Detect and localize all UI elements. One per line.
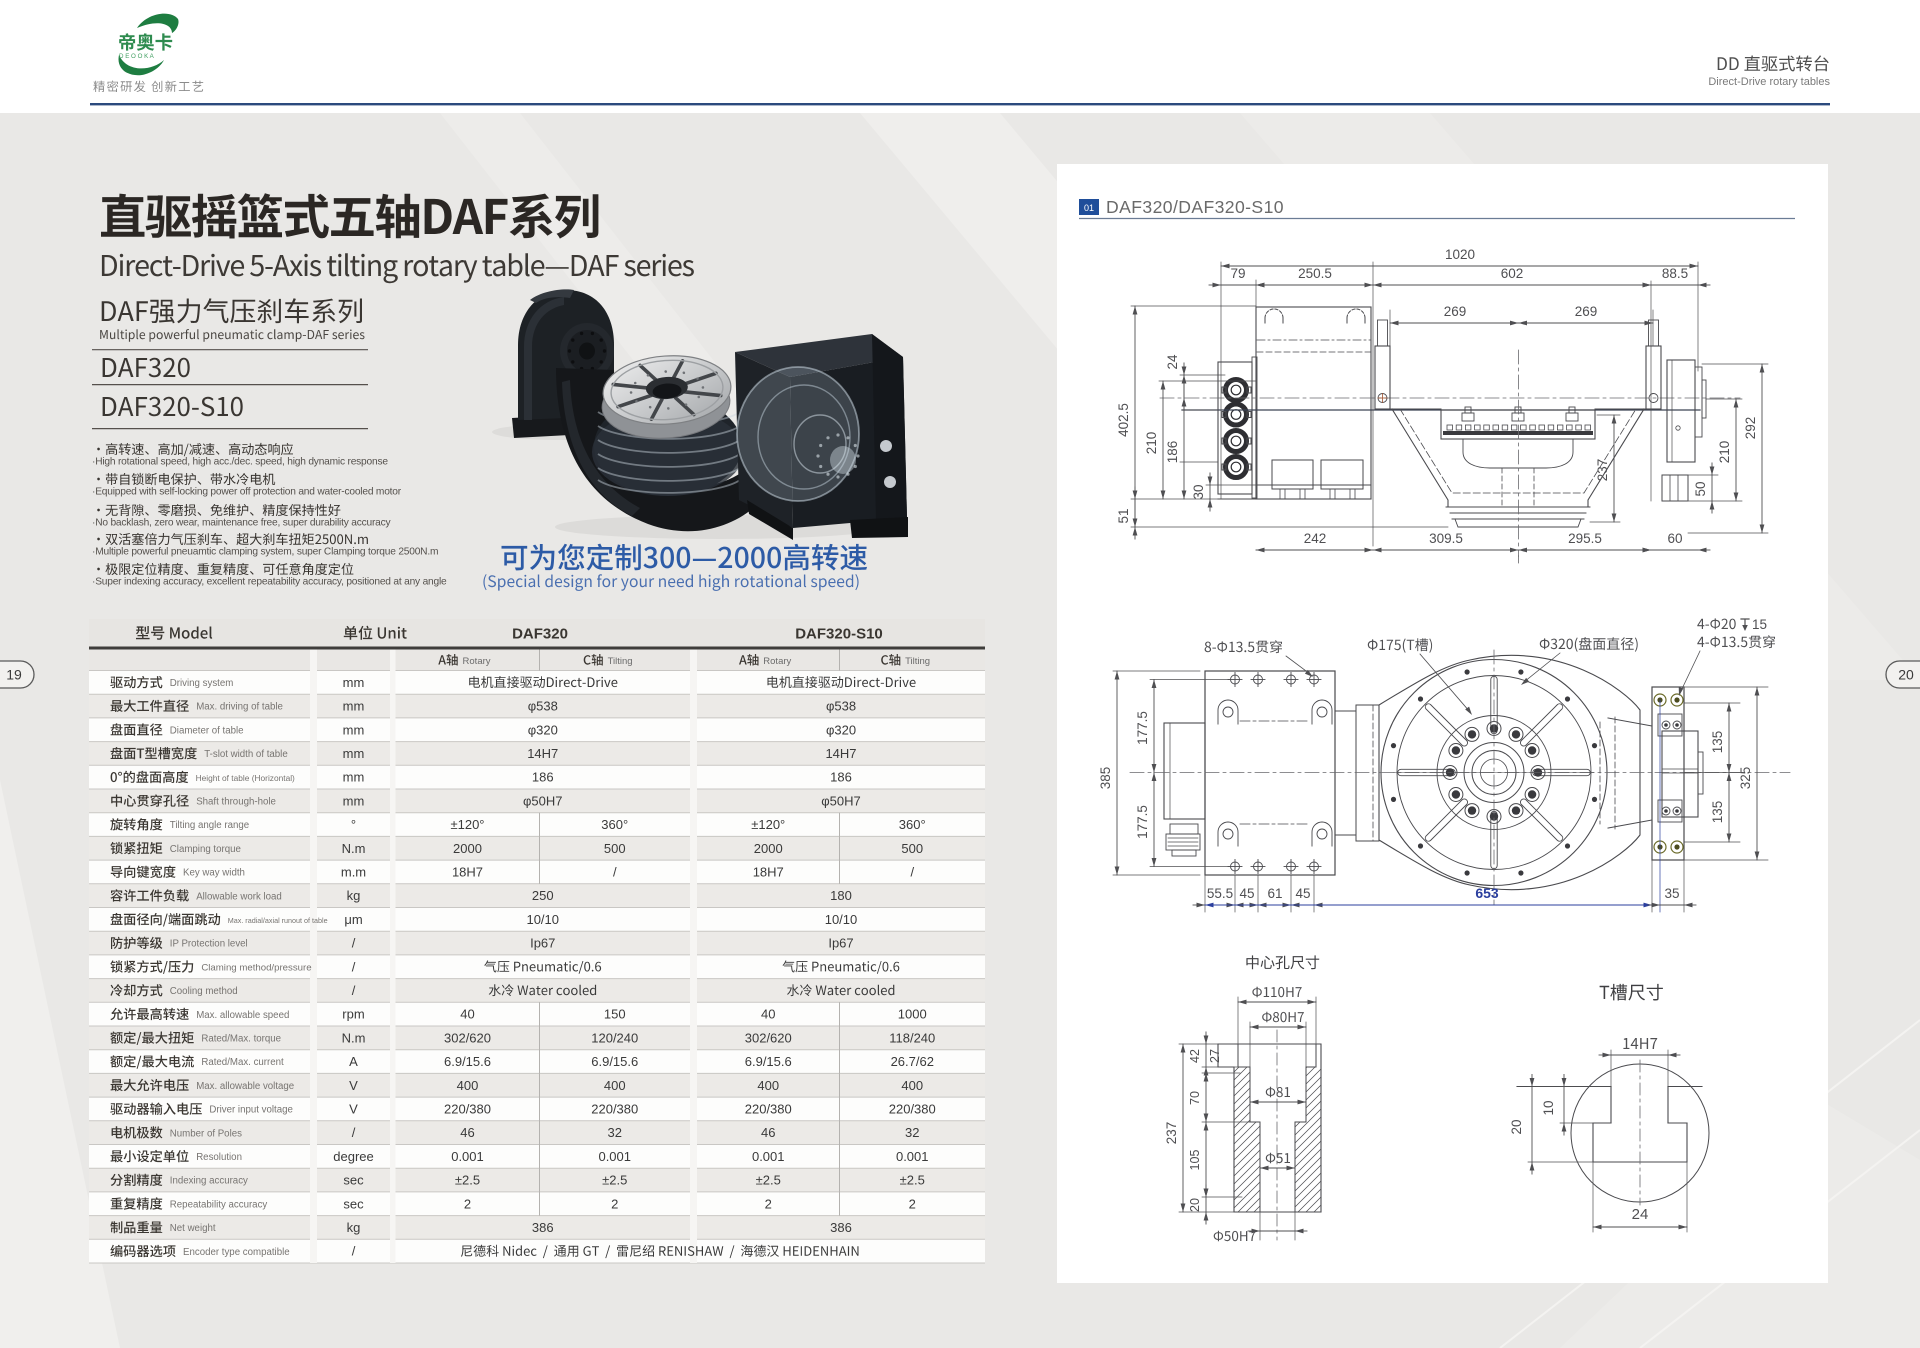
svg-text:55.5: 55.5 — [1207, 886, 1233, 901]
svg-text:250.5: 250.5 — [1298, 266, 1332, 281]
svg-text:2: 2 — [611, 1196, 618, 1211]
svg-text:0.001: 0.001 — [752, 1149, 785, 1164]
svg-text:Rotary: Rotary — [463, 656, 491, 667]
svg-text:Allowable work load: Allowable work load — [196, 891, 282, 902]
svg-text:φ50H7: φ50H7 — [523, 793, 563, 808]
svg-text:±2.5: ±2.5 — [455, 1173, 480, 1188]
svg-text:±120°: ±120° — [751, 817, 785, 832]
svg-text:m.m: m.m — [341, 864, 366, 879]
svg-text:·High rotational speed, high a: ·High rotational speed, high acc./dec. s… — [92, 457, 388, 468]
svg-text:Height of table (Horizontal): Height of table (Horizontal) — [196, 773, 295, 783]
svg-text:DAF320: DAF320 — [512, 626, 568, 643]
svg-text:Rated/Max. current: Rated/Max. current — [201, 1057, 284, 1068]
svg-text:degree: degree — [333, 1149, 373, 1164]
svg-text:Max. allowable voltage: Max. allowable voltage — [196, 1081, 294, 1092]
svg-text:79: 79 — [1230, 266, 1245, 281]
svg-text:30: 30 — [1191, 484, 1206, 499]
svg-text:°: ° — [351, 817, 356, 832]
svg-text:46: 46 — [761, 1125, 775, 1140]
svg-text:10/10: 10/10 — [825, 912, 858, 927]
svg-text:·Super indexing accuracy, exce: ·Super indexing accuracy, excellent repe… — [92, 577, 447, 588]
svg-text:24: 24 — [1632, 1206, 1649, 1223]
svg-text:Indexing accuracy: Indexing accuracy — [170, 1176, 248, 1187]
svg-text:IP Protection level: IP Protection level — [170, 939, 248, 950]
svg-text:292: 292 — [1743, 417, 1758, 440]
svg-text:6.9/15.6: 6.9/15.6 — [444, 1054, 491, 1069]
svg-text:51: 51 — [1116, 508, 1131, 523]
svg-text:6.9/15.6: 6.9/15.6 — [745, 1054, 792, 1069]
svg-text:mm: mm — [343, 793, 365, 808]
svg-text:220/380: 220/380 — [745, 1101, 792, 1116]
svg-text:602: 602 — [1501, 266, 1524, 281]
svg-text:Tilting: Tilting — [608, 656, 633, 667]
svg-text:70: 70 — [1188, 1091, 1202, 1105]
svg-text:Rated/Max. torque: Rated/Max. torque — [201, 1033, 281, 1044]
svg-text:rpm: rpm — [342, 1007, 364, 1022]
svg-text:237: 237 — [1164, 1122, 1179, 1145]
svg-text:DAF320-S10: DAF320-S10 — [795, 626, 883, 643]
svg-text:10/10: 10/10 — [526, 912, 559, 927]
svg-text:Shaft through-hole: Shaft through-hole — [196, 796, 276, 807]
svg-text:45: 45 — [1295, 886, 1310, 901]
svg-text:6.9/15.6: 6.9/15.6 — [591, 1054, 638, 1069]
svg-text:19: 19 — [6, 667, 22, 683]
svg-text:386: 386 — [830, 1220, 852, 1235]
svg-text:mm: mm — [343, 770, 365, 785]
svg-text:105: 105 — [1188, 1150, 1202, 1171]
svg-text:20: 20 — [1898, 667, 1914, 683]
svg-text:269: 269 — [1444, 304, 1467, 319]
svg-text:/: / — [352, 983, 356, 998]
svg-text:±2.5: ±2.5 — [602, 1173, 627, 1188]
svg-text:135: 135 — [1710, 731, 1725, 754]
svg-text:177.5: 177.5 — [1135, 711, 1150, 745]
svg-text:0.001: 0.001 — [598, 1149, 631, 1164]
svg-text:242: 242 — [1304, 531, 1327, 546]
svg-text:325: 325 — [1738, 767, 1753, 790]
svg-text:14H7: 14H7 — [825, 746, 856, 761]
svg-text:/: / — [613, 864, 617, 879]
svg-text:400: 400 — [604, 1078, 626, 1093]
svg-text:D E O O K A: D E O O K A — [119, 53, 155, 60]
svg-text:DAF320/DAF320-S10: DAF320/DAF320-S10 — [1106, 197, 1284, 217]
svg-text:186: 186 — [532, 770, 554, 785]
svg-text:sec: sec — [343, 1196, 364, 1211]
svg-text:400: 400 — [757, 1078, 779, 1093]
svg-text:309.5: 309.5 — [1429, 531, 1463, 546]
svg-text:2: 2 — [464, 1196, 471, 1211]
svg-text:φ538: φ538 — [826, 699, 856, 714]
svg-text:mm: mm — [343, 675, 365, 690]
svg-text:50: 50 — [1693, 481, 1708, 496]
svg-text:385: 385 — [1098, 767, 1113, 790]
svg-text:φ50H7: φ50H7 — [821, 793, 861, 808]
svg-text:kg: kg — [347, 888, 361, 903]
svg-text:Ip67: Ip67 — [530, 936, 555, 951]
svg-text:18H7: 18H7 — [753, 864, 784, 879]
svg-text:2: 2 — [909, 1196, 916, 1211]
svg-text:μm: μm — [344, 912, 362, 927]
svg-text:Repeatability accuracy: Repeatability accuracy — [170, 1199, 268, 1210]
svg-text:Clamping torque: Clamping torque — [170, 844, 241, 855]
svg-text:/: / — [352, 1244, 356, 1259]
svg-text:500: 500 — [604, 841, 626, 856]
svg-text:Max. radial/axial runout of ta: Max. radial/axial runout of table — [228, 916, 328, 925]
svg-text:360°: 360° — [899, 817, 926, 832]
svg-text:177.5: 177.5 — [1135, 805, 1150, 839]
svg-text:88.5: 88.5 — [1662, 266, 1688, 281]
svg-text:N.m: N.m — [342, 841, 366, 856]
svg-text:2: 2 — [765, 1196, 772, 1211]
svg-text:2000: 2000 — [453, 841, 482, 856]
svg-text:20: 20 — [1509, 1119, 1524, 1134]
svg-text:237: 237 — [1595, 459, 1610, 482]
svg-text:1000: 1000 — [898, 1007, 927, 1022]
svg-text:Tilting angle range: Tilting angle range — [170, 820, 249, 831]
svg-text:1020: 1020 — [1445, 247, 1475, 262]
svg-text:Direct-Drive rotary tables: Direct-Drive rotary tables — [1708, 76, 1830, 88]
svg-text:0.001: 0.001 — [451, 1149, 484, 1164]
svg-text:A: A — [349, 1054, 358, 1069]
svg-text:186: 186 — [1165, 441, 1180, 464]
svg-text:Number of Poles: Number of Poles — [170, 1128, 242, 1139]
svg-text:20: 20 — [1188, 1198, 1202, 1212]
svg-text:Max. driving of table: Max. driving of table — [196, 702, 283, 713]
svg-text:mm: mm — [343, 746, 365, 761]
svg-text:10: 10 — [1541, 1100, 1556, 1115]
svg-text:150: 150 — [604, 1007, 626, 1022]
svg-text:27: 27 — [1208, 1049, 1222, 1063]
svg-text:V: V — [349, 1101, 358, 1116]
svg-text:120/240: 120/240 — [591, 1030, 638, 1045]
svg-text:400: 400 — [457, 1078, 479, 1093]
svg-text:15: 15 — [1752, 617, 1767, 632]
svg-text:32: 32 — [608, 1125, 622, 1140]
svg-text:Driving system: Driving system — [170, 678, 234, 689]
svg-text:Encoder type compatible: Encoder type compatible — [183, 1247, 290, 1258]
svg-text:V: V — [349, 1078, 358, 1093]
svg-text:360°: 360° — [601, 817, 628, 832]
svg-text:46: 46 — [460, 1125, 474, 1140]
svg-text:0.001: 0.001 — [896, 1149, 929, 1164]
svg-text:2000: 2000 — [754, 841, 783, 856]
svg-text:40: 40 — [761, 1007, 775, 1022]
svg-text:40: 40 — [460, 1007, 474, 1022]
svg-text:135: 135 — [1710, 801, 1725, 824]
svg-text:35: 35 — [1664, 886, 1679, 901]
svg-text:Key way width: Key way width — [183, 868, 245, 879]
svg-text:269: 269 — [1575, 304, 1598, 319]
svg-text:14H7: 14H7 — [527, 746, 558, 761]
svg-text:180: 180 — [830, 888, 852, 903]
svg-text:kg: kg — [347, 1220, 361, 1235]
svg-text:·No backlash, zero wear, maint: ·No backlash, zero wear, maintenance fre… — [92, 518, 392, 529]
svg-text:250: 250 — [532, 888, 554, 903]
svg-text:Tilting: Tilting — [905, 656, 930, 667]
svg-text:45: 45 — [1239, 886, 1254, 901]
svg-text:42: 42 — [1188, 1049, 1202, 1063]
svg-text:Net weight: Net weight — [170, 1223, 216, 1234]
svg-text:500: 500 — [901, 841, 923, 856]
svg-text:·Multiple powerful pneuamtic c: ·Multiple powerful pneuamtic clamping sy… — [92, 547, 438, 558]
svg-text:186: 186 — [830, 770, 852, 785]
svg-text:400: 400 — [901, 1078, 923, 1093]
svg-text:61: 61 — [1267, 886, 1282, 901]
svg-text:±120°: ±120° — [450, 817, 484, 832]
svg-text:φ320: φ320 — [528, 722, 558, 737]
svg-text:Rotary: Rotary — [763, 656, 791, 667]
svg-text:220/380: 220/380 — [889, 1101, 936, 1116]
svg-text:Max. allowable speed: Max. allowable speed — [196, 1010, 289, 1021]
svg-text:T-slot width of table: T-slot width of table — [204, 749, 287, 760]
svg-text:60: 60 — [1667, 531, 1682, 546]
svg-text:32: 32 — [905, 1125, 919, 1140]
svg-text:Ip67: Ip67 — [828, 936, 853, 951]
svg-text:sec: sec — [343, 1173, 364, 1188]
svg-text:φ538: φ538 — [528, 699, 558, 714]
svg-text:302/620: 302/620 — [745, 1030, 792, 1045]
svg-text:Claming method/pressure: Claming method/pressure — [201, 962, 311, 973]
svg-text:Diameter of table: Diameter of table — [170, 725, 244, 736]
svg-text:118/240: 118/240 — [889, 1030, 935, 1045]
svg-text:302/620: 302/620 — [444, 1030, 491, 1045]
svg-text:01: 01 — [1084, 203, 1094, 213]
svg-text:mm: mm — [343, 699, 365, 714]
svg-text:/: / — [352, 936, 356, 951]
svg-text:·Equipped with self-locking po: ·Equipped with self-locking power off pr… — [92, 487, 402, 498]
svg-text:Cooling method: Cooling method — [170, 986, 238, 997]
svg-text:φ320: φ320 — [826, 722, 856, 737]
svg-text:Driver input voltage: Driver input voltage — [209, 1105, 292, 1116]
svg-text:295.5: 295.5 — [1568, 531, 1602, 546]
svg-text:386: 386 — [532, 1220, 554, 1235]
svg-text:/: / — [352, 1125, 356, 1140]
svg-text:±2.5: ±2.5 — [900, 1173, 925, 1188]
svg-text:±2.5: ±2.5 — [756, 1173, 781, 1188]
svg-text:653: 653 — [1475, 885, 1499, 901]
svg-text:Resolution: Resolution — [196, 1152, 242, 1163]
svg-text:18H7: 18H7 — [452, 864, 483, 879]
svg-text:220/380: 220/380 — [444, 1101, 491, 1116]
svg-text:/: / — [910, 864, 914, 879]
svg-text:N.m: N.m — [342, 1030, 366, 1045]
svg-text:220/380: 220/380 — [591, 1101, 638, 1116]
svg-text:mm: mm — [343, 722, 365, 737]
svg-text:24: 24 — [1165, 354, 1180, 370]
svg-text:/: / — [352, 959, 356, 974]
svg-text:26.7/62: 26.7/62 — [891, 1054, 934, 1069]
svg-text:210: 210 — [1144, 432, 1159, 455]
svg-text:402.5: 402.5 — [1116, 403, 1131, 437]
svg-text:210: 210 — [1717, 441, 1732, 464]
